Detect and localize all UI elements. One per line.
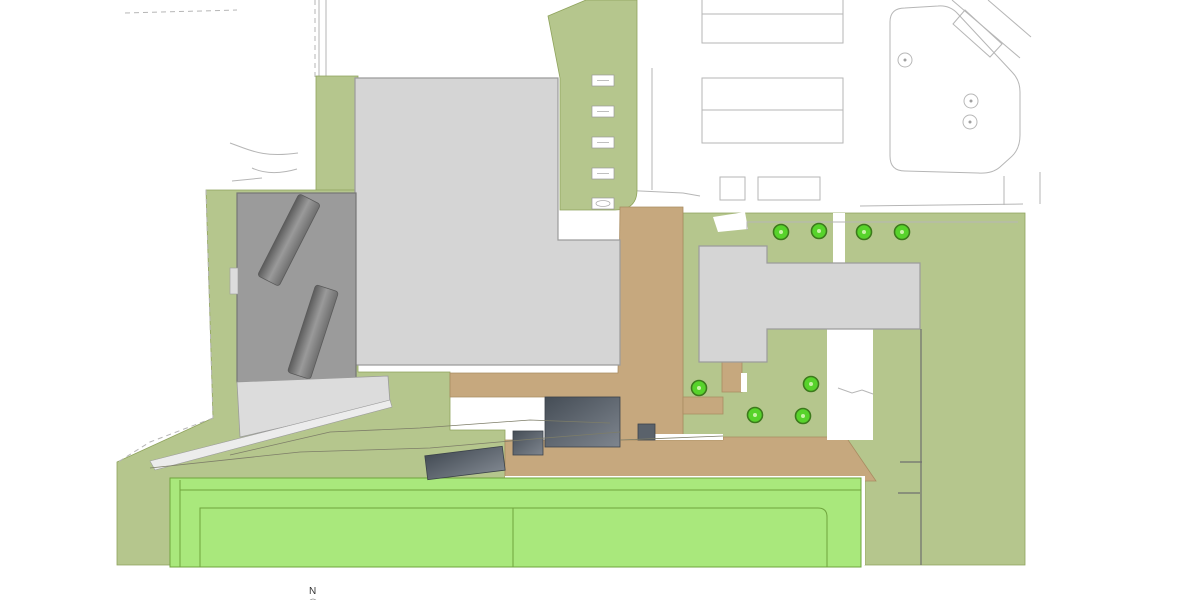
tree-centre-dot bbox=[753, 413, 757, 417]
tree-centre-dot bbox=[900, 230, 904, 234]
site-boundary-dashed bbox=[118, 190, 213, 462]
footpath-vertical-east bbox=[827, 329, 873, 440]
outbuilding-kiosk bbox=[638, 424, 655, 440]
footpath-dash bbox=[741, 373, 747, 392]
tree-centre-dot bbox=[862, 230, 866, 234]
bay-marker bbox=[592, 198, 614, 209]
footpath-sliver-right bbox=[861, 480, 865, 565]
site-plan-page: N bbox=[0, 0, 1200, 600]
existing-tree-dot bbox=[904, 59, 907, 62]
west-building-door bbox=[230, 268, 238, 294]
tree-centre-dot bbox=[817, 229, 821, 233]
footpath-gap-top bbox=[833, 213, 845, 263]
north-label: N bbox=[309, 586, 316, 597]
sports-field bbox=[170, 478, 861, 567]
tree-centre-dot bbox=[809, 382, 813, 386]
tree-centre-dot bbox=[801, 414, 805, 418]
traffic-island bbox=[860, 0, 1040, 206]
paved-stub bbox=[722, 362, 742, 392]
existing-tree-dot bbox=[969, 121, 972, 124]
survey-tree-symbols bbox=[898, 53, 978, 129]
track-double-line bbox=[319, 0, 326, 77]
boundary-dashes-top bbox=[125, 10, 237, 13]
kerb-line bbox=[860, 204, 1023, 206]
outbuilding-small bbox=[513, 431, 543, 455]
tree-centre-dot bbox=[697, 386, 701, 390]
parking-rows bbox=[702, 0, 843, 200]
tree-centre-dot bbox=[779, 230, 783, 234]
green-strip-left-of-main-building bbox=[316, 76, 358, 194]
field-surface bbox=[170, 478, 861, 567]
north-arrow: N bbox=[309, 586, 317, 600]
existing-tree-dot bbox=[970, 100, 973, 103]
contour-lines-left bbox=[230, 143, 298, 181]
paved-arm-east bbox=[683, 397, 723, 414]
dimension-ticks bbox=[1004, 172, 1040, 205]
site-plan-canvas: N bbox=[0, 0, 1200, 600]
